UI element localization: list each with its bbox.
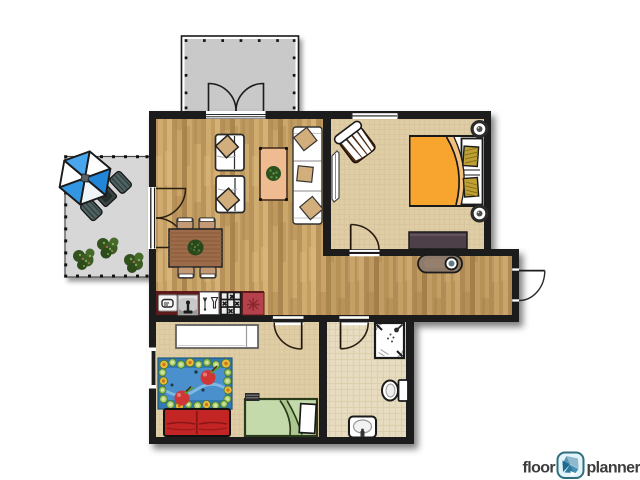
svg-text:floor: floor [523, 460, 556, 477]
svg-text:planner: planner [587, 460, 640, 477]
